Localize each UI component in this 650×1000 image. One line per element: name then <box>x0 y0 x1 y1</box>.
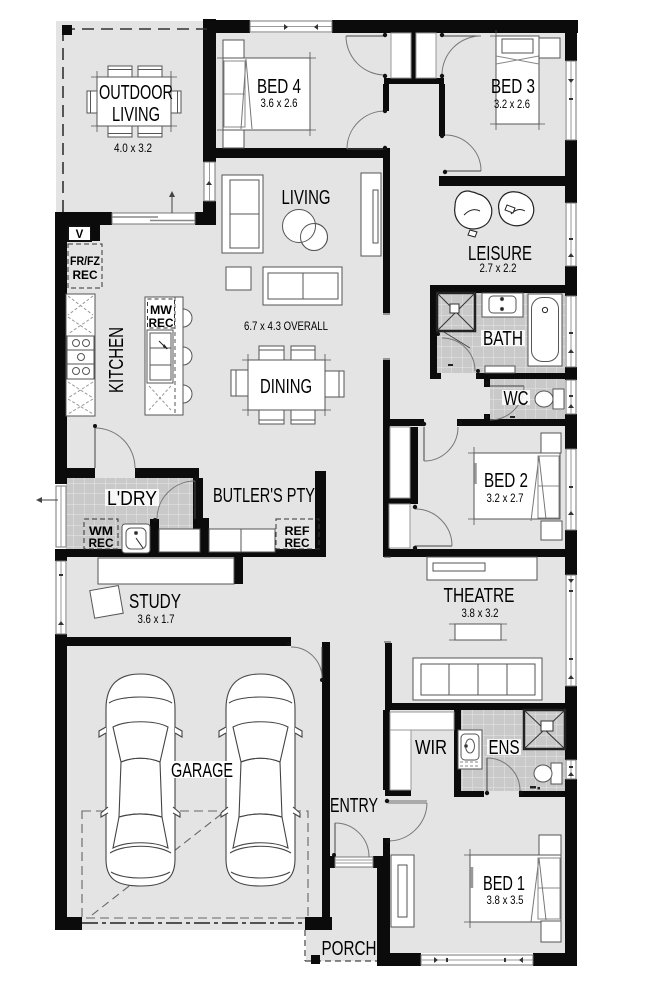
svg-text:REC: REC <box>73 270 98 282</box>
svg-text:6.7 x 4.3 OVERALL: 6.7 x 4.3 OVERALL <box>244 319 328 333</box>
svg-text:PORCH: PORCH <box>322 938 377 960</box>
svg-text:3.6 x 1.7: 3.6 x 1.7 <box>138 612 175 626</box>
svg-text:REC: REC <box>149 318 174 330</box>
svg-text:REF: REF <box>285 526 310 538</box>
svg-text:KITCHEN: KITCHEN <box>106 327 128 393</box>
svg-text:REC: REC <box>285 538 310 550</box>
svg-text:LIVING: LIVING <box>112 104 160 126</box>
svg-text:WIR: WIR <box>415 737 447 759</box>
svg-text:THEATRE: THEATRE <box>444 585 515 607</box>
svg-text:4.0 x 3.2: 4.0 x 3.2 <box>114 141 152 155</box>
svg-text:OUTDOOR: OUTDOOR <box>99 82 173 104</box>
svg-text:2.7 x 2.2: 2.7 x 2.2 <box>480 261 517 275</box>
svg-text:FR/FZ: FR/FZ <box>70 256 100 268</box>
svg-text:ENS: ENS <box>489 737 520 759</box>
svg-text:BED 1: BED 1 <box>483 873 525 895</box>
svg-text:BED 2: BED 2 <box>484 470 528 492</box>
svg-text:MW: MW <box>150 305 172 317</box>
svg-text:BED 4: BED 4 <box>257 76 301 98</box>
svg-text:3.2 x 2.7: 3.2 x 2.7 <box>487 491 524 505</box>
svg-text:GARAGE: GARAGE <box>171 760 233 782</box>
svg-text:V: V <box>76 229 84 241</box>
svg-text:BED 3: BED 3 <box>491 76 535 98</box>
svg-text:L'DRY: L'DRY <box>107 488 157 510</box>
svg-text:3.8 x 3.2: 3.8 x 3.2 <box>462 606 499 620</box>
svg-text:DINING: DINING <box>260 376 312 398</box>
svg-text:LIVING: LIVING <box>282 187 331 209</box>
svg-text:3.2 x 2.6: 3.2 x 2.6 <box>494 97 530 111</box>
svg-text:3.8 x 3.5: 3.8 x 3.5 <box>487 893 524 907</box>
svg-text:REC: REC <box>89 538 114 550</box>
svg-text:BATH: BATH <box>483 328 523 350</box>
svg-text:STUDY: STUDY <box>129 591 181 613</box>
svg-text:BUTLER'S PTY: BUTLER'S PTY <box>213 485 315 507</box>
svg-text:3.6 x 2.6: 3.6 x 2.6 <box>261 96 298 110</box>
svg-text:WM: WM <box>89 526 113 538</box>
svg-text:WC: WC <box>504 388 529 410</box>
svg-text:ENTRY: ENTRY <box>330 795 378 817</box>
